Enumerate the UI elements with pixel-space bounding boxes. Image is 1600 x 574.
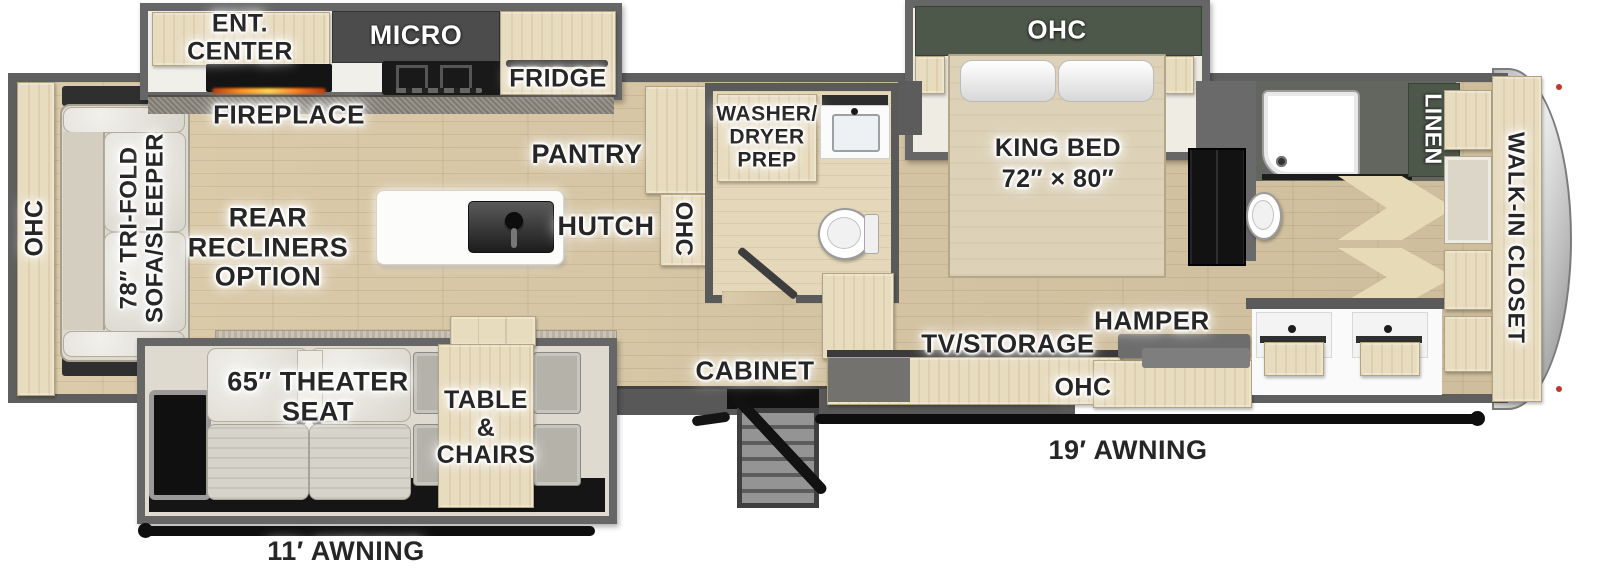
hamper-step-upper <box>1142 348 1250 368</box>
shower-drain-icon <box>1276 156 1287 167</box>
theater-seat-label: 65″ THEATER SEAT <box>227 367 408 426</box>
recliners-line1: REAR <box>188 203 349 233</box>
walk-in-closet-label: WALK-IN CLOSET <box>1503 132 1528 344</box>
pantry-label: PANTRY <box>532 140 643 170</box>
linen-label: LINEN <box>1420 93 1445 165</box>
entry-steps <box>737 408 819 508</box>
vanity-room-wall <box>1246 298 1450 309</box>
awning-11-endcap <box>138 523 153 538</box>
rear-recliners-label: REAR RECLINERS OPTION <box>188 203 349 292</box>
vanity-right-faucet-icon <box>1384 325 1392 333</box>
bath-mirror <box>822 95 888 105</box>
buffet-hutch <box>450 316 536 346</box>
washer-line1: WASHER/ <box>716 102 818 125</box>
sofa-backrest <box>63 132 105 330</box>
kitchen-ohc-label: OHC <box>670 202 696 257</box>
king-bed-label: KING BED 72″ × 80″ <box>995 133 1121 196</box>
hutch-label: HUTCH <box>558 212 655 242</box>
king-bed-line2: 72″ × 80″ <box>995 164 1121 195</box>
theater-seat-right <box>309 424 411 500</box>
theater-line1: 65″ THEATER <box>227 367 408 397</box>
toilet-tank <box>864 214 879 254</box>
bath-sink-faucet-icon <box>851 108 858 115</box>
front-toilet-inner <box>1252 200 1274 230</box>
wall-stub-bedroom <box>898 81 922 135</box>
vanity-left-base <box>1264 342 1324 376</box>
washer-line2: DRYER <box>716 125 818 148</box>
vanity-right-base <box>1360 342 1420 376</box>
toilet-seat-inner <box>827 217 861 249</box>
bedroom-ohc-label: OHC <box>1027 16 1086 45</box>
king-bed-line1: KING BED <box>995 133 1121 164</box>
fireplace-embers <box>212 88 326 94</box>
table-line3: CHAIRS <box>437 442 536 470</box>
exterior-tv-compartment <box>149 390 211 500</box>
floorplan-canvas: OHC 78″ TRI-FOLD SOFA/SLEEPER REAR RECLI… <box>0 0 1600 574</box>
island-sink <box>468 201 554 253</box>
nightstand-right <box>1164 56 1194 94</box>
fireplace-label: FIREPLACE <box>213 101 365 130</box>
bedroom-wardrobe <box>1188 148 1246 266</box>
closet-shelf-bottom <box>1444 316 1492 372</box>
awning-19-label: 19′ AWNING <box>1049 436 1208 466</box>
ent-center-label: ENT. CENTER <box>187 11 293 66</box>
hall-cabinet-column <box>822 273 894 359</box>
bed-pillow-left <box>960 60 1056 102</box>
theater-line2: SEAT <box>227 397 408 427</box>
dinette-chair <box>533 424 581 486</box>
bed-pillow-right <box>1058 60 1154 102</box>
clearance-light-bottom <box>1556 386 1562 392</box>
sofa-label-line1: 78″ TRI-FOLD <box>117 133 143 323</box>
ent-center-line1: ENT. <box>187 11 293 39</box>
cabinet-label: CABINET <box>695 357 814 386</box>
bath-sink-basin <box>832 114 880 152</box>
bottom-ohc-label: OHC <box>1054 374 1111 402</box>
awning-19-endcap <box>1470 411 1485 426</box>
theater-seat-left <box>207 424 309 500</box>
table-chairs-label: TABLE & CHAIRS <box>437 387 536 470</box>
washer-dryer-label: WASHER/ DRYER PREP <box>716 102 818 171</box>
tv-storage-label: TV/STORAGE <box>921 330 1095 359</box>
sofa-label: 78″ TRI-FOLD SOFA/SLEEPER <box>117 133 170 323</box>
stove-cooktop <box>382 61 518 95</box>
clearance-light-top <box>1556 84 1562 90</box>
micro-label: MICRO <box>370 21 463 51</box>
table-line1: TABLE <box>437 387 536 415</box>
sofa-label-line2: SOFA/SLEEPER <box>143 133 169 323</box>
recliners-line2: RECLINERS <box>188 233 349 263</box>
tv-storage-console-gray <box>828 358 910 402</box>
rear-ohc-label: OHC <box>21 199 49 256</box>
ent-center-line2: CENTER <box>187 38 293 66</box>
recliners-line3: OPTION <box>188 263 349 293</box>
pantry-cabinet <box>645 86 709 194</box>
awning-19-rod <box>815 414 1481 424</box>
hamper-label: HAMPER <box>1094 307 1210 336</box>
stove-vent-bar <box>396 88 482 93</box>
closet-mirror <box>1444 156 1492 244</box>
washer-line3: PREP <box>716 149 818 172</box>
closet-shelf-upper <box>1444 90 1492 150</box>
vanity-left-faucet-icon <box>1288 325 1296 333</box>
fridge-label: FRIDGE <box>509 65 606 93</box>
bath-vanity <box>820 105 890 159</box>
closet-shelf-lower <box>1444 250 1492 310</box>
sink-faucet-spout <box>511 228 517 248</box>
awning-11-rod <box>143 526 595 536</box>
dinette-chair <box>533 352 581 414</box>
table-line2: & <box>437 414 536 442</box>
awning-11-label: 11′ AWNING <box>267 537 425 567</box>
